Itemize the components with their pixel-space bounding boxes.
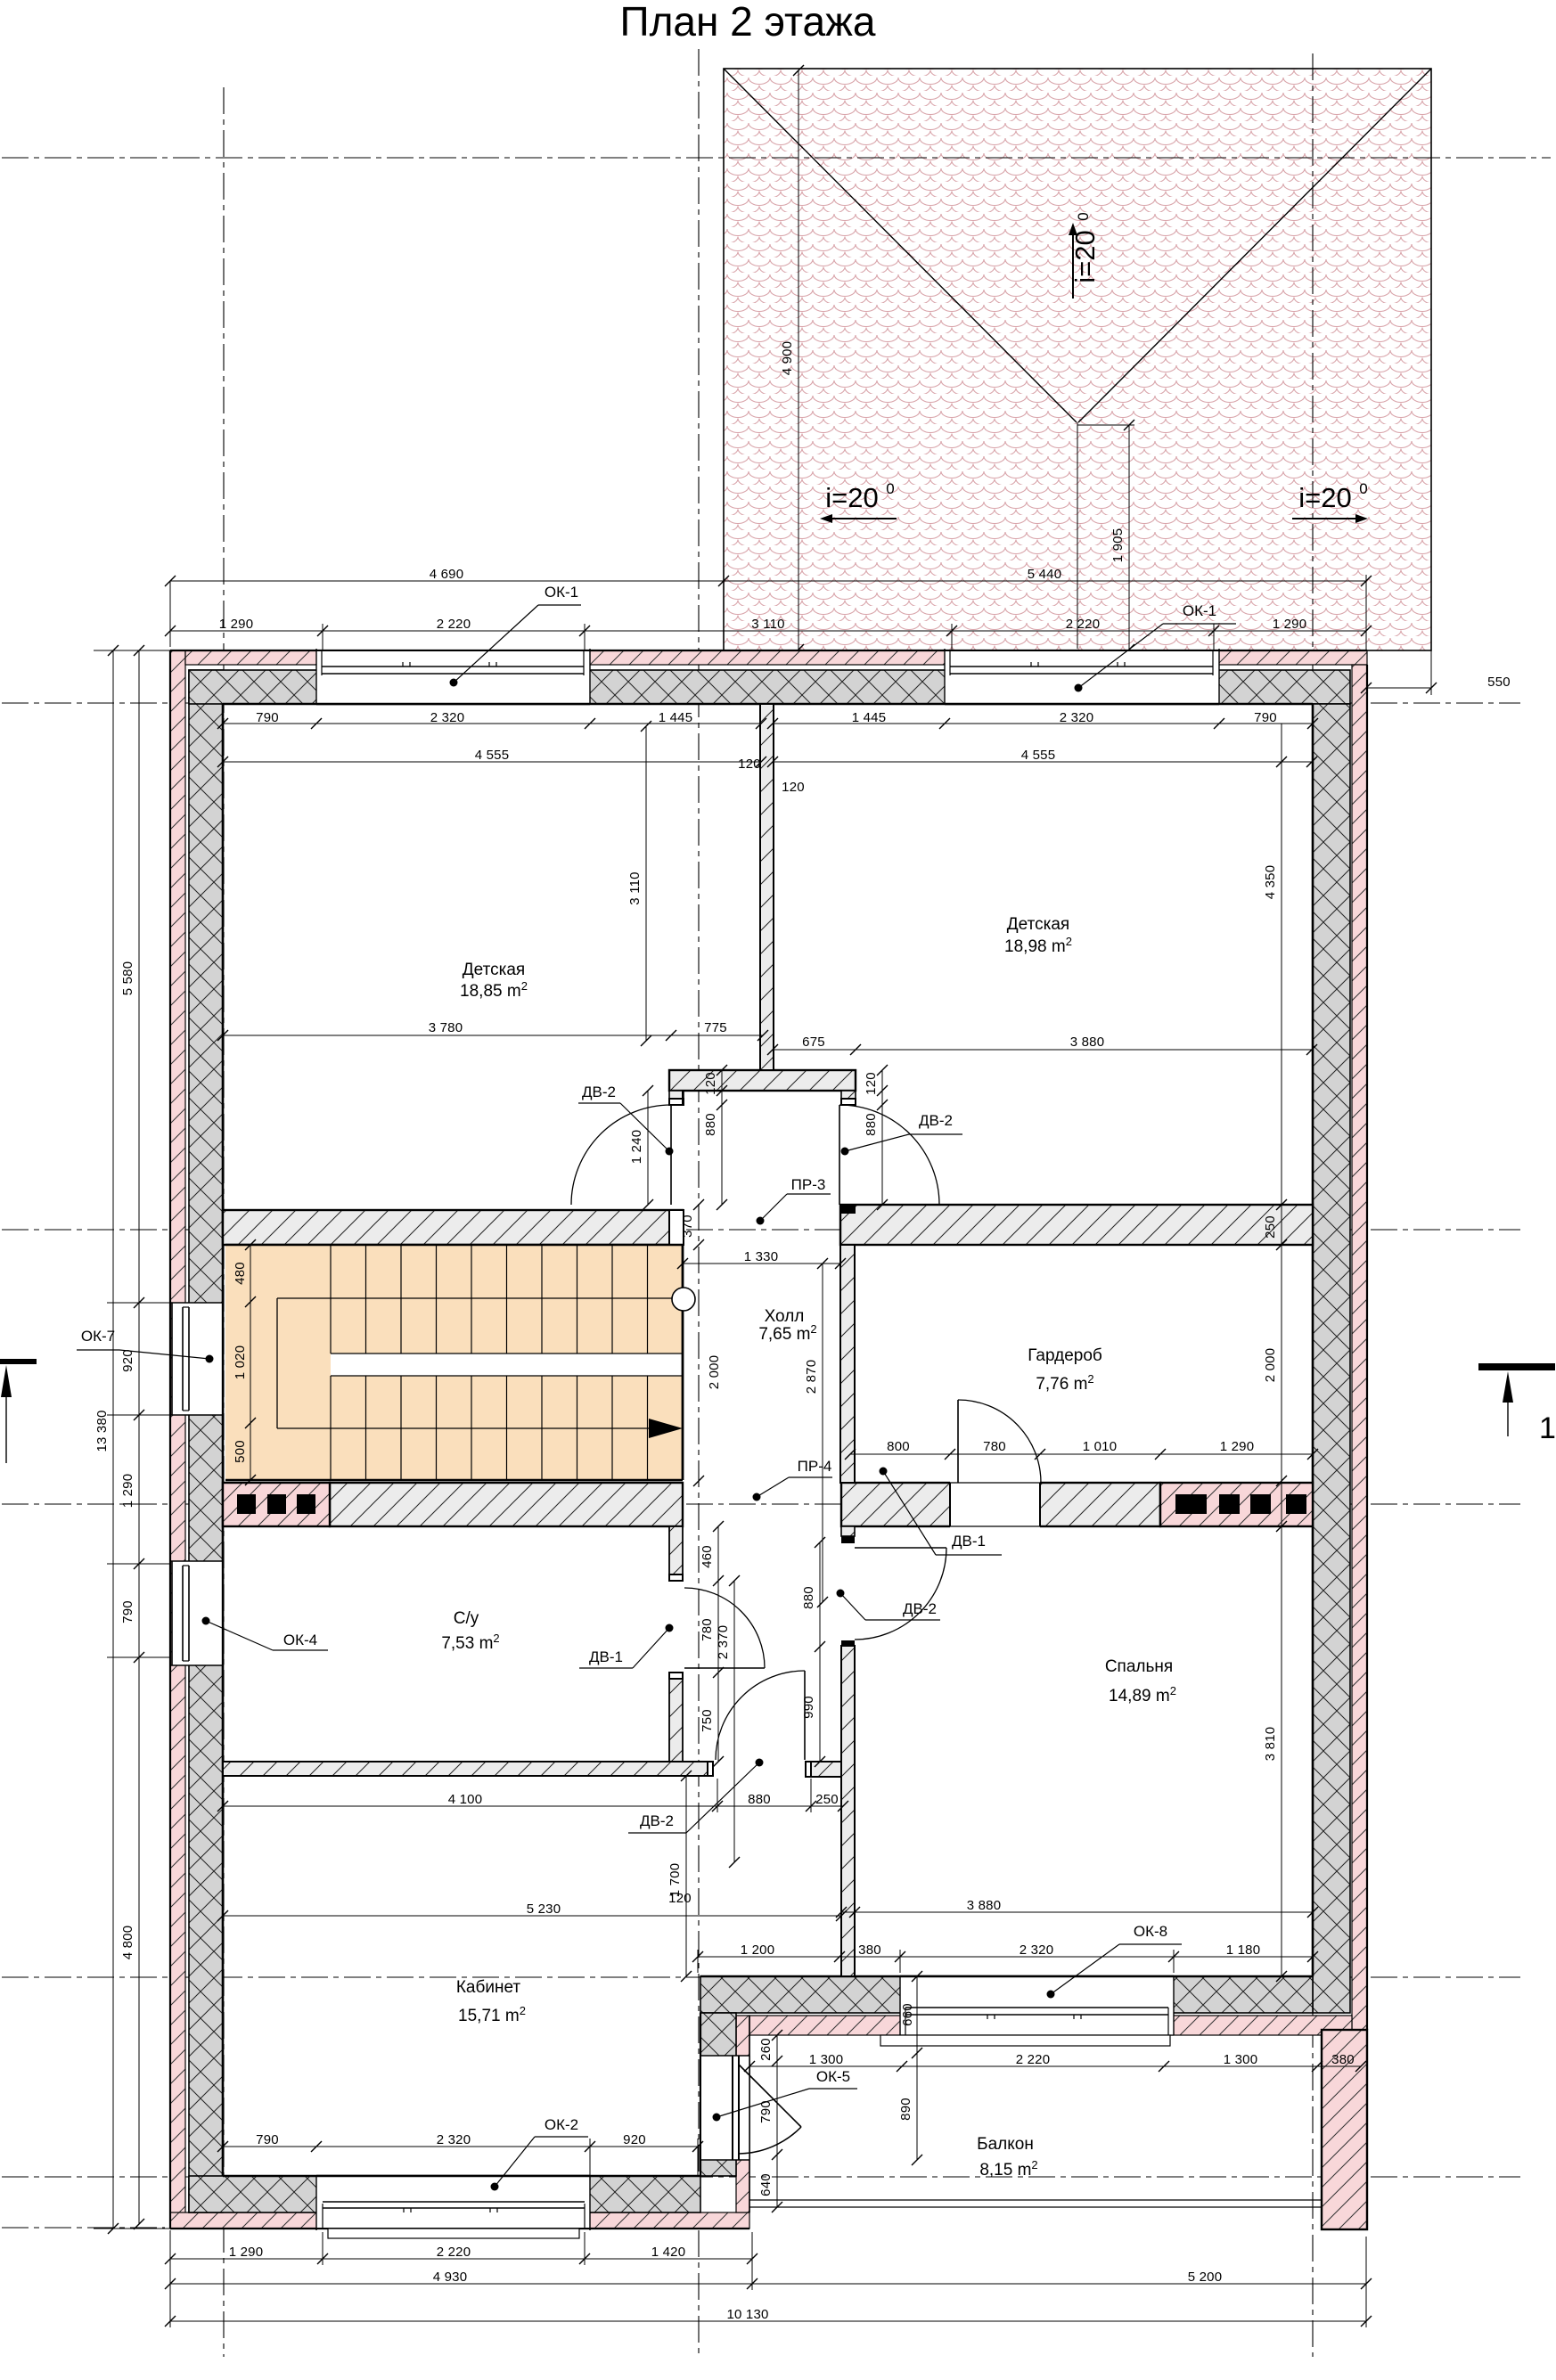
svg-text:640: 640 xyxy=(758,2173,774,2196)
svg-text:1 200: 1 200 xyxy=(741,1942,775,1958)
svg-text:14,89 m2: 14,89 m2 xyxy=(1109,1684,1176,1705)
svg-text:4 350: 4 350 xyxy=(1263,865,1278,900)
svg-text:ДВ-1: ДВ-1 xyxy=(952,1533,986,1550)
svg-text:880: 880 xyxy=(801,1586,816,1609)
svg-text:780: 780 xyxy=(700,1618,715,1641)
svg-text:i=20: i=20 xyxy=(1069,230,1101,282)
svg-text:750: 750 xyxy=(700,1709,715,1732)
svg-text:120: 120 xyxy=(703,1072,718,1095)
svg-text:2 320: 2 320 xyxy=(1060,710,1094,725)
svg-text:18,98 m2: 18,98 m2 xyxy=(1004,935,1072,956)
svg-text:120: 120 xyxy=(738,757,761,772)
svg-text:675: 675 xyxy=(802,1035,825,1050)
svg-text:1 300: 1 300 xyxy=(1224,2052,1258,2067)
svg-text:4 900: 4 900 xyxy=(780,341,795,376)
svg-text:0: 0 xyxy=(886,480,894,497)
svg-text:2 220: 2 220 xyxy=(437,2245,471,2260)
svg-text:1 905: 1 905 xyxy=(1110,528,1126,563)
svg-text:i=20: i=20 xyxy=(825,482,878,513)
svg-text:1 290: 1 290 xyxy=(120,1474,135,1509)
svg-text:13 380: 13 380 xyxy=(94,1410,110,1452)
svg-text:1 290: 1 290 xyxy=(229,2245,264,2260)
svg-text:500: 500 xyxy=(233,1440,248,1463)
svg-text:480: 480 xyxy=(233,1262,248,1285)
svg-text:3 880: 3 880 xyxy=(967,1898,1002,1913)
svg-text:1 240: 1 240 xyxy=(629,1130,644,1165)
svg-text:18,85 m2: 18,85 m2 xyxy=(460,979,528,1001)
svg-text:250: 250 xyxy=(1263,1215,1278,1239)
svg-text:С/у: С/у xyxy=(454,1609,479,1628)
svg-text:880: 880 xyxy=(864,1113,879,1136)
svg-text:790: 790 xyxy=(256,2132,279,2147)
svg-text:ПР-3: ПР-3 xyxy=(791,1176,826,1193)
svg-text:4 100: 4 100 xyxy=(448,1792,483,1807)
svg-text:ДВ-2: ДВ-2 xyxy=(582,1084,616,1100)
svg-text:2 870: 2 870 xyxy=(804,1360,819,1394)
svg-text:2 220: 2 220 xyxy=(1016,2052,1051,2067)
svg-text:1 290: 1 290 xyxy=(219,617,254,632)
svg-text:ОК-8: ОК-8 xyxy=(1134,1923,1167,1940)
svg-text:120: 120 xyxy=(782,780,805,795)
svg-text:2 320: 2 320 xyxy=(430,710,465,725)
svg-text:250: 250 xyxy=(815,1792,839,1807)
svg-text:i=20: i=20 xyxy=(1298,482,1351,513)
svg-text:880: 880 xyxy=(748,1792,771,1807)
svg-text:1 445: 1 445 xyxy=(659,710,693,725)
svg-text:ПР-4: ПР-4 xyxy=(798,1458,832,1475)
svg-text:План 2 этажа: План 2 этажа xyxy=(620,0,876,45)
svg-text:8,15 m2: 8,15 m2 xyxy=(979,2158,1037,2180)
svg-text:3 110: 3 110 xyxy=(751,617,784,632)
svg-text:Холл: Холл xyxy=(765,1307,805,1326)
svg-text:3 110: 3 110 xyxy=(627,871,643,904)
svg-text:7,76 m2: 7,76 m2 xyxy=(1036,1372,1093,1394)
svg-text:3 880: 3 880 xyxy=(1070,1035,1105,1050)
svg-text:790: 790 xyxy=(120,1600,135,1623)
svg-text:4 555: 4 555 xyxy=(475,748,510,763)
svg-text:370: 370 xyxy=(680,1215,695,1238)
svg-text:5 580: 5 580 xyxy=(120,961,135,996)
svg-text:ОК-5: ОК-5 xyxy=(816,2068,850,2085)
svg-text:ОК-4: ОК-4 xyxy=(283,1632,317,1648)
svg-text:7,53 m2: 7,53 m2 xyxy=(441,1632,499,1653)
svg-text:460: 460 xyxy=(700,1545,715,1568)
svg-text:380: 380 xyxy=(858,1942,881,1958)
svg-text:ДВ-2: ДВ-2 xyxy=(640,1812,674,1829)
svg-text:0: 0 xyxy=(1359,480,1367,497)
svg-text:920: 920 xyxy=(623,2132,646,2147)
svg-text:5 200: 5 200 xyxy=(1188,2270,1223,2285)
svg-text:2 370: 2 370 xyxy=(716,1625,731,1660)
svg-text:7,65 m2: 7,65 m2 xyxy=(758,1322,816,1344)
svg-text:Спальня: Спальня xyxy=(1105,1657,1173,1676)
svg-text:Балкон: Балкон xyxy=(977,2135,1034,2154)
svg-text:120: 120 xyxy=(668,1891,692,1906)
svg-text:3 780: 3 780 xyxy=(429,1020,463,1035)
svg-text:1 290: 1 290 xyxy=(1273,617,1307,632)
svg-text:4 800: 4 800 xyxy=(120,1926,135,1960)
svg-text:Кабинет: Кабинет xyxy=(456,1978,521,1997)
svg-text:ОК-7: ОК-7 xyxy=(81,1328,115,1345)
svg-text:0: 0 xyxy=(1075,212,1092,220)
svg-text:120: 120 xyxy=(864,1072,879,1095)
svg-text:4 690: 4 690 xyxy=(430,567,464,582)
svg-text:4 555: 4 555 xyxy=(1021,748,1056,763)
svg-text:780: 780 xyxy=(983,1439,1006,1454)
svg-text:790: 790 xyxy=(256,710,279,725)
svg-text:5 440: 5 440 xyxy=(1028,567,1062,582)
svg-text:ОК-1: ОК-1 xyxy=(1183,602,1216,619)
svg-text:ОК-1: ОК-1 xyxy=(545,584,578,601)
svg-text:10 130: 10 130 xyxy=(726,2307,768,2322)
svg-text:1 445: 1 445 xyxy=(852,710,887,725)
svg-text:920: 920 xyxy=(120,1349,135,1372)
svg-text:1 330: 1 330 xyxy=(744,1249,779,1264)
svg-text:1 420: 1 420 xyxy=(651,2245,686,2260)
svg-text:1 290: 1 290 xyxy=(1220,1439,1255,1454)
svg-text:2 320: 2 320 xyxy=(437,2132,471,2147)
svg-text:ДВ-2: ДВ-2 xyxy=(903,1600,937,1617)
svg-text:800: 800 xyxy=(887,1439,910,1454)
svg-text:660: 660 xyxy=(900,2003,915,2026)
svg-text:1: 1 xyxy=(1539,1411,1556,1445)
svg-text:260: 260 xyxy=(758,2038,774,2061)
svg-text:1 020: 1 020 xyxy=(233,1345,248,1380)
svg-text:2 220: 2 220 xyxy=(437,617,471,632)
svg-text:Гардероб: Гардероб xyxy=(1028,1346,1102,1365)
svg-text:15,71 m2: 15,71 m2 xyxy=(458,2004,526,2025)
svg-text:ОК-2: ОК-2 xyxy=(545,2116,578,2133)
svg-text:1 010: 1 010 xyxy=(1083,1439,1118,1454)
svg-text:4 930: 4 930 xyxy=(433,2270,468,2285)
svg-text:ДВ-1: ДВ-1 xyxy=(589,1648,623,1665)
svg-text:2 000: 2 000 xyxy=(1263,1348,1278,1383)
svg-text:775: 775 xyxy=(704,1020,727,1035)
svg-text:2 320: 2 320 xyxy=(1020,1942,1054,1958)
svg-text:2 000: 2 000 xyxy=(707,1355,722,1390)
svg-text:2 220: 2 220 xyxy=(1066,617,1101,632)
svg-text:550: 550 xyxy=(1487,675,1511,690)
svg-text:380: 380 xyxy=(1331,2052,1355,2067)
svg-text:1 300: 1 300 xyxy=(809,2052,844,2067)
svg-text:790: 790 xyxy=(1254,710,1277,725)
svg-text:880: 880 xyxy=(703,1113,718,1136)
svg-text:Детская: Детская xyxy=(463,961,525,979)
svg-text:3 810: 3 810 xyxy=(1263,1727,1278,1762)
svg-text:5 230: 5 230 xyxy=(527,1902,561,1917)
svg-text:1 180: 1 180 xyxy=(1226,1942,1261,1958)
svg-text:Детская: Детская xyxy=(1007,915,1069,934)
svg-text:990: 990 xyxy=(801,1696,816,1719)
svg-text:890: 890 xyxy=(898,2098,913,2121)
svg-text:ДВ-2: ДВ-2 xyxy=(919,1112,953,1129)
